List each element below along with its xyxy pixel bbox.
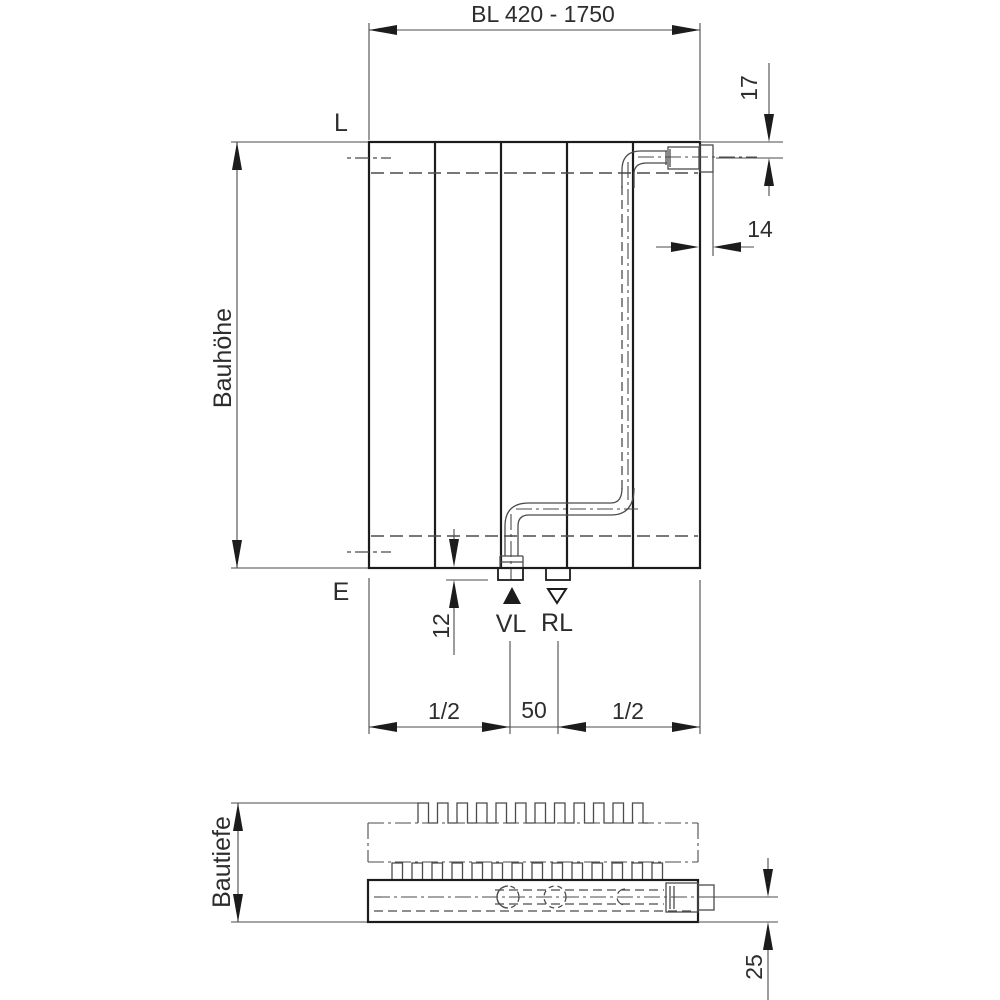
arrow-right-icon (672, 25, 700, 35)
dim-17-label: 17 (736, 75, 762, 101)
arrow-left-icon (369, 722, 397, 732)
return-flow-triangle-icon (548, 589, 566, 603)
convector-fins-top (418, 803, 648, 823)
dim-50-label: 50 (521, 697, 547, 723)
arrow-down-icon (764, 114, 774, 142)
arrow-right-icon (482, 722, 510, 732)
panel-dividers (435, 142, 633, 568)
fitting-nipple (700, 145, 713, 172)
radiator-dimension-drawing: BL 420 - 1750 Bauhöhe L E (0, 0, 1000, 1000)
arrow-up-icon (764, 158, 774, 186)
arrow-left-icon (558, 722, 586, 732)
water-channel-lines (371, 173, 698, 536)
dim-14-label: 14 (747, 216, 773, 242)
arrow-down-icon (232, 540, 242, 568)
dim-25-label: 25 (741, 954, 767, 980)
arrow-left-icon (369, 25, 397, 35)
vent-side-label: L (334, 109, 348, 137)
arrow-up-icon (232, 142, 242, 170)
build-height-label: Bauhöhe (209, 308, 237, 408)
arrow-up-icon (449, 580, 459, 608)
return-label: RL (541, 609, 573, 637)
dim-bottom-spacing: 1/2 50 1/2 (369, 578, 700, 734)
arrow-up-icon (763, 922, 773, 950)
phantom-second-panel (368, 823, 698, 862)
dim-half-right-label: 1/2 (612, 698, 644, 724)
front-radiator-body (347, 142, 700, 568)
convector-fins-bottom (392, 863, 672, 880)
plan-panel (368, 880, 714, 922)
supply-label: VL (496, 610, 527, 638)
dim-half-left-label: 1/2 (428, 698, 460, 724)
drain-side-label: E (333, 578, 350, 606)
dim-build-height: Bauhöhe (209, 142, 368, 568)
arrow-left-icon (713, 242, 741, 252)
front-view: BL 420 - 1750 Bauhöhe L E (209, 1, 783, 734)
vl-pipe-union (500, 556, 523, 568)
rl-tapping (546, 568, 570, 580)
supply-flow-triangle-icon (503, 587, 521, 604)
top-connection-fitting (666, 145, 713, 172)
dim-connection-bottom-offset: 25 (698, 858, 778, 1000)
dim-build-length: BL 420 - 1750 (369, 1, 700, 140)
dim-connection-protrusion: 14 (656, 172, 773, 256)
dim-build-depth: Bautiefe (208, 803, 418, 922)
arrow-right-icon (671, 242, 699, 252)
fitting-body (668, 147, 699, 169)
build-length-label: BL 420 - 1750 (471, 1, 615, 27)
build-depth-label: Bautiefe (208, 816, 236, 908)
bottom-tappings: VL RL (496, 568, 573, 638)
arrow-right-icon (672, 722, 700, 732)
arrow-down-icon (763, 869, 773, 897)
arrow-down-icon (449, 539, 459, 567)
dim-12-label: 12 (428, 613, 454, 639)
technical-drawing-page: BL 420 - 1750 Bauhöhe L E (0, 0, 1000, 1000)
plan-view: Bautiefe 25 (208, 803, 778, 1000)
pipe-run (500, 151, 757, 580)
dim-tapping-protrusion: 12 (428, 529, 488, 655)
